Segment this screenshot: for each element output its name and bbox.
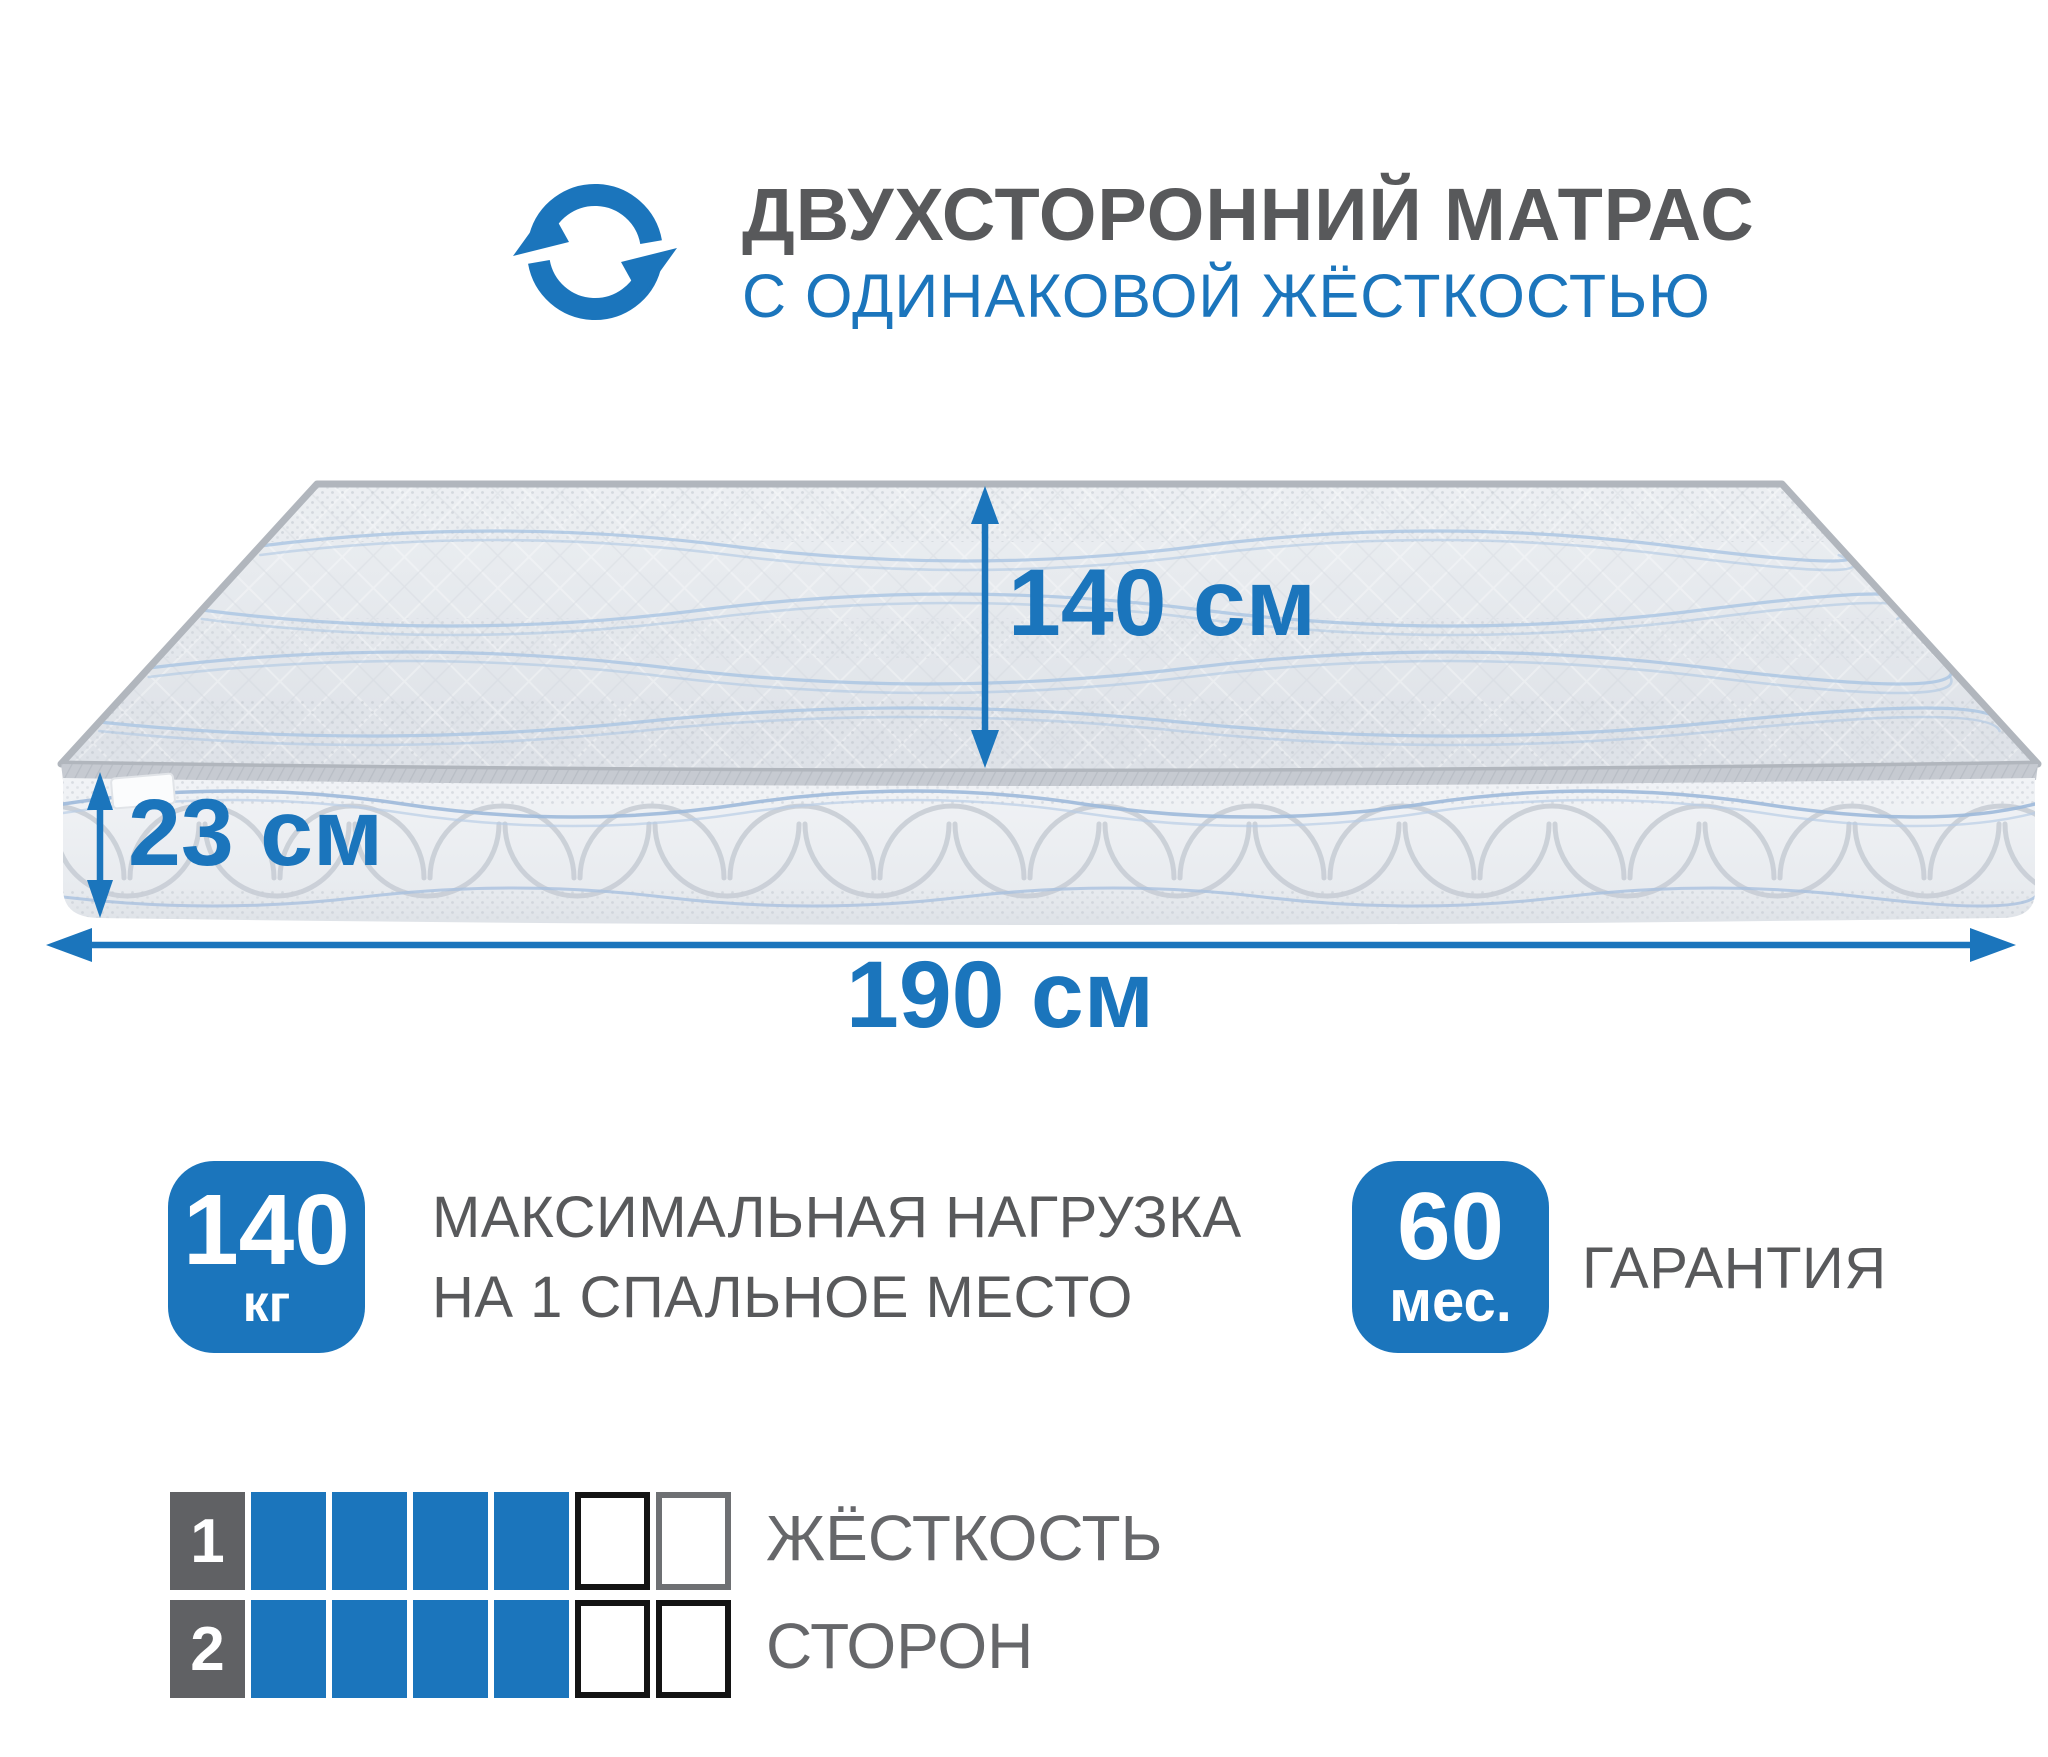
max-load-label-line1: МАКСИМАЛЬНАЯ НАГРУЗКА — [432, 1178, 1242, 1258]
firmness-scale-label-line1: ЖЁСТКОСТЬ — [766, 1506, 1163, 1570]
warranty-badge: 60 мес. — [1352, 1161, 1549, 1353]
max-load-value: 140 — [183, 1184, 350, 1276]
rotate-arrows-icon — [505, 172, 685, 342]
mattress-infographic: ДВУХСТОРОННИЙ МАТРАС С ОДИНАКОВОЙ ЖЁСТКО… — [0, 0, 2048, 1757]
side-number: 2 — [170, 1600, 245, 1698]
max-load-label: МАКСИМАЛЬНАЯ НАГРУЗКА НА 1 СПАЛЬНОЕ МЕСТ… — [432, 1178, 1242, 1338]
warranty-label: ГАРАНТИЯ — [1582, 1240, 1887, 1298]
firmness-cell-filled — [332, 1492, 407, 1590]
max-load-badge: 140 кг — [168, 1161, 365, 1353]
firmness-cell-empty — [656, 1492, 731, 1590]
firmness-cell-filled — [494, 1600, 569, 1698]
max-load-label-line2: НА 1 СПАЛЬНОЕ МЕСТО — [432, 1258, 1242, 1338]
firmness-scale: 12 — [170, 1492, 731, 1708]
firmness-cell-empty — [656, 1600, 731, 1698]
firmness-cell-empty — [575, 1600, 650, 1698]
firmness-cell-filled — [251, 1600, 326, 1698]
warranty-value: 60 — [1397, 1183, 1504, 1271]
firmness-cell-filled — [251, 1492, 326, 1590]
warranty-unit: мес. — [1389, 1273, 1512, 1331]
side-number: 1 — [170, 1492, 245, 1590]
page-title: ДВУХСТОРОННИЙ МАТРАС — [742, 178, 1755, 252]
firmness-cell-filled — [413, 1600, 488, 1698]
firmness-row: 2 — [170, 1600, 731, 1698]
firmness-cell-empty — [575, 1492, 650, 1590]
firmness-row: 1 — [170, 1492, 731, 1590]
page-subtitle: С ОДИНАКОВОЙ ЖЁСТКОСТЬЮ — [742, 266, 1711, 327]
firmness-scale-label-line2: СТОРОН — [766, 1614, 1033, 1678]
firmness-cell-filled — [494, 1492, 569, 1590]
length-dimension-label: 190 см — [0, 948, 2000, 1043]
firmness-cell-filled — [413, 1492, 488, 1590]
max-load-unit: кг — [243, 1278, 291, 1330]
height-dimension-label: 23 см — [128, 786, 383, 881]
firmness-cell-filled — [332, 1600, 407, 1698]
width-dimension-label: 140 см — [1008, 556, 1316, 651]
